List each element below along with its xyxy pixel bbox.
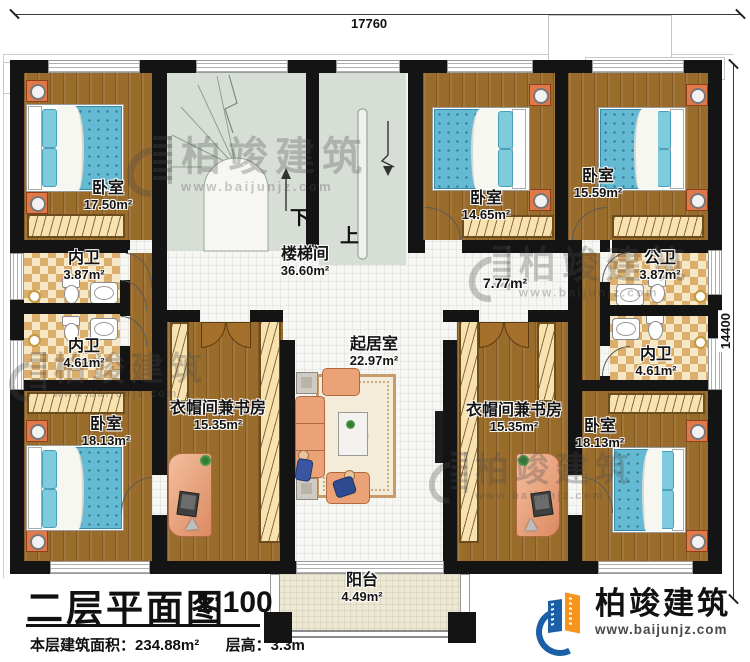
nightstand — [686, 84, 708, 106]
brand-url: www.baijunjz.com — [595, 622, 731, 637]
brand-name: 柏竣建筑 — [595, 588, 731, 619]
side-table — [296, 372, 318, 394]
room-label-bedroom-top-left: 卧室17.50m² — [84, 180, 132, 212]
computer-monitor — [176, 491, 199, 518]
watermark: 柏竣建筑 www.baijunjz.com — [10, 352, 208, 400]
dimension-top-value: 17760 — [348, 16, 390, 31]
wall-segment — [568, 515, 582, 561]
roof-outline — [548, 15, 672, 62]
nightstand — [686, 530, 708, 552]
logo-building-orange-icon — [565, 592, 580, 633]
wall-segment — [582, 380, 708, 391]
wall-segment — [152, 310, 200, 322]
plan-scale: 1:100 — [196, 586, 273, 620]
bed-headboard — [670, 109, 684, 189]
room-label-cloak-study-right: 衣帽间兼书房15.35m² — [466, 402, 562, 434]
bed-headboard — [28, 447, 42, 529]
room-label-bath-right: 内卫4.61m² — [635, 346, 676, 378]
room-label-bedroom-top-right: 卧室15.59m² — [574, 168, 622, 200]
wall-segment — [120, 240, 130, 250]
floor-height-label: 层高： — [226, 637, 271, 654]
sink-icon — [90, 282, 118, 304]
nightstand — [26, 192, 48, 214]
window — [592, 60, 684, 73]
balcony-railing — [460, 574, 470, 616]
watermark-name: 柏竣建筑 — [475, 452, 635, 486]
bed-sheet — [57, 106, 84, 190]
bed-sheet — [57, 447, 84, 529]
plan-footer: 本层建筑面积：234.88m² 层高：3.3m — [30, 634, 305, 655]
wall-segment — [24, 303, 120, 314]
room-label-bedroom-bottom-left: 卧室18.13m² — [82, 416, 130, 448]
watermark-url: www.baijunjz.com — [475, 488, 635, 501]
bed-pillow — [657, 149, 671, 187]
watermark-logo-icon — [10, 352, 46, 400]
room-label-living-room: 起居室22.97m² — [350, 336, 398, 368]
towel-ring-icon — [694, 336, 707, 349]
brand-logo-icon — [536, 588, 588, 648]
window — [48, 60, 140, 73]
bed-sheet — [634, 109, 658, 189]
watermark-url: www.baijunjz.com — [53, 387, 207, 399]
nightstand — [26, 530, 48, 552]
watermark-url: www.baijunjz.com — [181, 179, 369, 194]
nightstand — [686, 189, 708, 211]
bed-pillow — [498, 149, 513, 187]
window — [50, 561, 150, 574]
closet — [608, 393, 705, 414]
bed-mattress — [57, 447, 122, 529]
window — [447, 60, 533, 73]
floor-height-value: 3.3m — [271, 637, 305, 654]
watermark-name: 柏竣建筑 — [181, 137, 369, 177]
nightstand — [26, 420, 48, 442]
stair-down-label: 下 — [290, 203, 309, 230]
window — [10, 253, 24, 300]
wall-segment — [408, 60, 423, 250]
brand-logo: 柏竣建筑 www.baijunjz.com — [536, 588, 731, 648]
room-label-bedroom-top-middle: 卧室14.65m² — [462, 190, 510, 222]
bed-pillow — [657, 111, 671, 149]
watermark: 柏竣建筑 www.baijunjz.com — [430, 452, 635, 501]
nightstand — [529, 84, 551, 106]
stair-up-label: 上 — [340, 221, 359, 248]
bed-pillow — [42, 489, 57, 528]
window — [598, 561, 693, 574]
sink-icon — [90, 318, 118, 340]
balcony-post — [448, 612, 476, 643]
wall-segment — [528, 310, 568, 322]
towel-ring-icon — [28, 290, 41, 303]
logo-building-blue-icon — [548, 599, 562, 633]
floor-area-label: 本层建筑面积： — [30, 637, 135, 654]
room-label-hallway: 7.77m² — [483, 276, 527, 292]
bed-mattress — [434, 109, 498, 189]
bed-headboard — [512, 109, 526, 189]
floor-area-value: 234.88m² — [135, 637, 199, 654]
armchair — [322, 368, 360, 396]
floor-plan: 柏竣建筑 www.baijunjz.com 柏竣建筑 www.baijunjz.… — [0, 0, 750, 659]
room-label-bath-left-bottom: 内卫4.61m² — [63, 338, 104, 370]
bed-pillow — [42, 450, 57, 489]
wall-segment — [280, 340, 295, 561]
nightstand — [686, 420, 708, 442]
watermark-logo-icon — [128, 136, 172, 194]
wall-segment — [443, 340, 457, 561]
room-label-bath-left-top: 内卫3.87m² — [63, 250, 104, 282]
bed-pillow — [660, 490, 674, 529]
room-label-public-bath: 公卫3.87m² — [639, 250, 680, 282]
balcony-railing — [292, 636, 448, 638]
title-underline — [26, 624, 260, 627]
room-label-bedroom-bottom-right: 卧室18.13m² — [576, 418, 624, 450]
nightstand — [26, 80, 48, 102]
wall-segment — [600, 305, 708, 316]
wardrobe — [537, 322, 556, 402]
wall-segment — [152, 515, 167, 561]
toilet-icon — [646, 314, 664, 340]
window — [708, 250, 722, 295]
bed-sheet — [471, 109, 498, 189]
towel-ring-icon — [694, 290, 707, 303]
room-label-stairwell: 楼梯间36.60m² — [281, 246, 329, 278]
watermark: 柏竣建筑 www.baijunjz.com — [128, 136, 369, 194]
dimension-right-value: 14400 — [718, 310, 733, 352]
dimension-line-right — [733, 64, 734, 600]
window — [336, 60, 400, 73]
wall-segment — [10, 60, 24, 574]
wall-segment — [555, 60, 568, 250]
table-decor — [346, 420, 355, 429]
wall-segment — [408, 240, 425, 253]
bed-pillow — [42, 109, 57, 148]
plant — [200, 455, 211, 466]
wall-segment — [600, 376, 610, 380]
bed-pillow — [498, 111, 513, 149]
wall-segment — [443, 310, 479, 322]
towel-ring-icon — [28, 334, 41, 347]
nightstand — [529, 189, 551, 211]
sink-icon — [612, 318, 640, 340]
watermark-url: www.baijunjz.com — [519, 285, 692, 299]
bed-headboard — [28, 106, 42, 190]
bed-pillow — [42, 148, 57, 187]
wall-segment — [250, 310, 283, 322]
bed-pillow — [660, 451, 674, 490]
balcony-railing — [292, 630, 448, 632]
watermark-logo-icon — [430, 452, 467, 501]
room-label-cloak-study-left: 衣帽间兼书房15.35m² — [170, 400, 266, 432]
eaves-line — [3, 54, 4, 578]
bed-mattress — [57, 106, 122, 190]
bed-sheet — [642, 449, 662, 531]
room-label-balcony: 阳台4.49m² — [341, 572, 382, 604]
window — [196, 60, 288, 73]
dimension-line-top — [14, 14, 741, 15]
coffee-table — [338, 412, 368, 456]
